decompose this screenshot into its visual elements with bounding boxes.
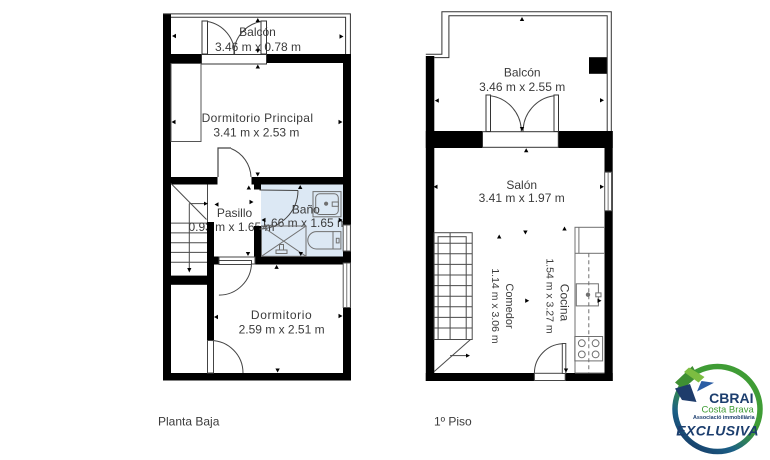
svg-text:3.41 m x 1.97 m: 3.41 m x 1.97 m (479, 191, 565, 205)
svg-text:Salón: Salón (506, 178, 537, 192)
svg-text:3.41 m x 2.53 m: 3.41 m x 2.53 m (213, 126, 299, 140)
svg-text:Cocina: Cocina (558, 284, 572, 322)
svg-text:Balcón: Balcón (504, 66, 541, 80)
svg-text:Comedor: Comedor (503, 283, 515, 329)
svg-text:2.59 m x 2.51 m: 2.59 m x 2.51 m (239, 323, 325, 337)
svg-text:1.54 m x 3.27 m: 1.54 m x 3.27 m (544, 258, 556, 334)
svg-text:3.46 m x 2.55 m: 3.46 m x 2.55 m (479, 80, 565, 94)
svg-text:1.14 m x 3.06 m: 1.14 m x 3.06 m (489, 268, 501, 344)
svg-text:Dormitorio Principal: Dormitorio Principal (202, 111, 314, 125)
svg-text:Pasillo: Pasillo (217, 206, 253, 220)
svg-text:Associació immobiliària: Associació immobiliària (693, 415, 756, 421)
svg-text:Dormitorio: Dormitorio (251, 308, 312, 322)
svg-text:Costa Brava: Costa Brava (701, 404, 754, 415)
svg-text:3.46 m x 0.78 m: 3.46 m x 0.78 m (215, 40, 301, 54)
svg-text:Baño: Baño (292, 203, 320, 217)
svg-text:Balcón: Balcón (239, 25, 276, 39)
svg-text:EXCLUSIVA: EXCLUSIVA (676, 422, 759, 438)
svg-text:Planta Baja: Planta Baja (158, 415, 220, 429)
svg-text:1º Piso: 1º Piso (434, 415, 472, 429)
